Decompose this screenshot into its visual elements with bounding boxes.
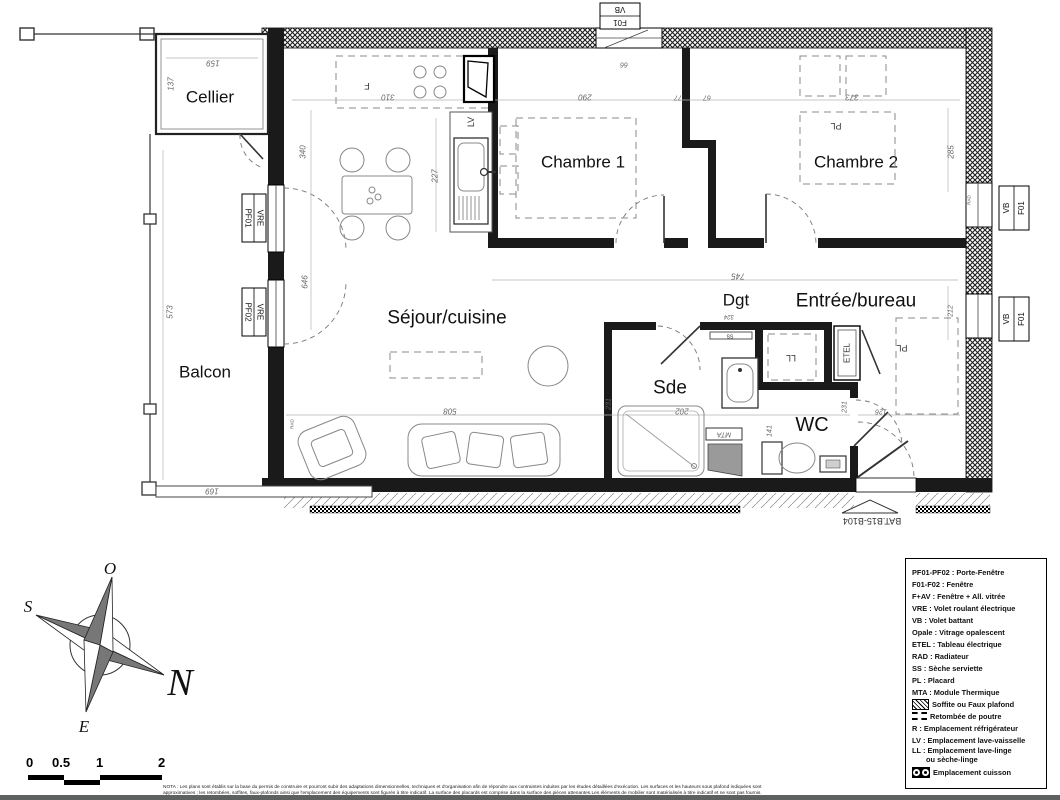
scale-label-0: 0	[26, 755, 33, 770]
closet2-dashed-right	[846, 56, 886, 96]
dim-212: 212	[948, 305, 955, 318]
closet-chambre2-label: PL	[830, 121, 841, 131]
compass-east-label: E	[78, 717, 90, 736]
room-label-sejour: Séjour/cuisine	[387, 308, 506, 329]
scale-label-05: 0.5	[52, 755, 70, 770]
dim-77: 77	[673, 94, 682, 101]
scale-segment	[28, 775, 64, 780]
legend-item: VRE : Volet roulant électrique	[912, 602, 1043, 614]
exterior-paving-right	[916, 506, 990, 513]
dim-159: 159	[206, 59, 220, 68]
dim-310: 310	[381, 93, 395, 102]
building-ref-label: BAT.B15-B104	[843, 516, 901, 526]
dim-646: 646	[301, 275, 310, 289]
entree-closet-dashed	[896, 318, 958, 414]
top-window-shutter-label: VB	[615, 5, 626, 14]
legend-item: RAD : Radiateur	[912, 650, 1043, 662]
dim-231-sde: 231	[606, 398, 613, 411]
compass-rose: O S E N	[12, 560, 202, 745]
wall-top-right-segment	[662, 28, 990, 48]
sink-unit	[450, 112, 496, 232]
compass-north-label: N	[166, 662, 195, 704]
beam-dashed-sejour	[390, 352, 482, 378]
chambre2-door-gap	[764, 238, 818, 248]
radiator-right-label: RAD	[967, 195, 972, 205]
armchair	[294, 413, 369, 484]
dim-373: 373	[845, 93, 859, 102]
legend-item: R : Emplacement réfrigérateur	[912, 722, 1043, 734]
washbasin	[722, 358, 758, 408]
scale-label-2: 2	[158, 755, 165, 770]
legend-box: PF01-PF02 : Porte-Fenêtre F01-F02 : Fenê…	[905, 558, 1047, 789]
cooktop-icon	[912, 767, 930, 778]
room-label-wc: WC	[795, 414, 828, 436]
dim-285: 285	[947, 145, 956, 160]
dim-324: 324	[723, 313, 734, 319]
side-table	[528, 346, 568, 386]
dim-169: 169	[205, 487, 219, 496]
wall-right-middle	[966, 227, 992, 294]
kitchen-window-leaf	[464, 56, 494, 102]
openings: VB F01 VB F01 VB F01 PF01	[242, 3, 1029, 526]
dim-126: 126	[875, 408, 887, 415]
beam-icon	[912, 712, 927, 720]
laundry-closet: LL	[768, 334, 816, 380]
faucet-icon	[481, 169, 488, 176]
cellier: Cellier 159 137	[20, 28, 268, 168]
dim-290: 290	[578, 93, 593, 102]
balcony-slab-edge	[156, 486, 372, 497]
chambre1-contents	[500, 118, 664, 248]
left-door1-code-label: PF01	[244, 208, 253, 228]
dining-set	[340, 148, 412, 240]
right-window2-code-label: F01	[1017, 312, 1026, 326]
sofa	[408, 424, 560, 476]
window-f01-top: VB F01	[596, 3, 662, 48]
kitchen-window-label: F	[364, 81, 370, 91]
left-door2-shutter-label: VRE	[256, 304, 265, 320]
wall-left-lower	[268, 347, 284, 492]
room-label-cellier: Cellier	[186, 88, 235, 107]
legend-item: Emplacement cuisson	[912, 766, 1043, 778]
dim-573: 573	[166, 305, 175, 319]
dim-227: 227	[431, 169, 440, 184]
legend-item: Retombée de poutre	[912, 710, 1043, 722]
mta-unit	[708, 444, 742, 476]
cooktop-icon	[414, 66, 446, 98]
towel-dryer-label: SS	[726, 333, 733, 339]
toilet	[762, 442, 815, 474]
exterior-hatch-right	[916, 493, 990, 508]
compass-west-label: O	[104, 560, 116, 578]
room-label-sde: Sde	[653, 378, 687, 399]
left-door1-shutter-label: VRE	[256, 210, 265, 226]
legend-item: F01-F02 : Fenêtre	[912, 578, 1043, 590]
wall-right-upper	[966, 28, 992, 183]
scale-label-1: 1	[96, 755, 103, 770]
wall-bottom-right-segment	[916, 478, 992, 492]
room-label-entree: Entrée/bureau	[796, 291, 916, 312]
room-label-chambre2: Chambre 2	[814, 153, 898, 172]
right-window1-shutter-label: VB	[1002, 203, 1011, 214]
legend-item: ETEL : Tableau électrique	[912, 638, 1043, 650]
interior-walls	[488, 48, 966, 478]
legend-item: VB : Volet battant	[912, 614, 1043, 626]
soffite-icon	[912, 699, 929, 710]
door-window-pf01-left: PF01 VRE	[242, 185, 346, 252]
dim-137: 137	[167, 77, 176, 91]
closet2-dashed-left	[800, 56, 840, 96]
electrical-panel: ETEL	[834, 326, 880, 380]
wc-door-gap	[850, 398, 858, 446]
door-window-pf02-left: PF02 VRE	[242, 280, 346, 347]
wall-left-upper	[268, 28, 284, 185]
chambre1-door-gap	[614, 238, 664, 248]
dim-508: 508	[443, 407, 457, 416]
wall-top-left-segment	[262, 28, 596, 48]
floor-plan-page: VB F01 VB F01 VB F01 PF01	[0, 0, 1060, 800]
room-label-dgt: Dgt	[723, 291, 750, 310]
dim-745: 745	[731, 272, 745, 281]
legend-item: MTA : Module Thermique	[912, 686, 1043, 698]
room-label-balcon: Balcon	[179, 363, 231, 382]
legend-item: Soffite ou Faux plafond	[912, 698, 1043, 710]
dim-141: 141	[767, 425, 774, 437]
legend-item: LV : Emplacement lave-vaisselle	[912, 734, 1043, 746]
thermal-module-label: MTA	[717, 431, 732, 438]
right-window2-shutter-label: VB	[1002, 314, 1011, 325]
electrical-panel-label: ETEL	[843, 342, 852, 363]
etel-door-leaf	[862, 330, 880, 374]
washer-label: LL	[786, 353, 796, 363]
cellier-door-leaf	[240, 134, 263, 159]
legend-item: LL : Emplacement lave-lingeou sèche-ling…	[912, 746, 1043, 766]
dim-340: 340	[299, 145, 308, 159]
legend-item: PF01-PF02 : Porte-Fenêtre	[912, 566, 1043, 578]
room-label-chambre1: Chambre 1	[541, 153, 625, 172]
window-f01-right-upper: VB F01	[966, 183, 1029, 230]
wall-left-middle	[268, 252, 284, 280]
scale-segment	[64, 780, 100, 785]
outer-walls	[262, 28, 992, 513]
bed2-dashed	[800, 112, 895, 184]
floor-plan-drawing: VB F01 VB F01 VB F01 PF01	[0, 0, 1060, 556]
window-f01-right-lower: VB F01	[966, 294, 1029, 341]
scale-segment	[100, 775, 162, 780]
left-door2-code-label: PF02	[244, 302, 253, 322]
scale-bar: 0 0.5 1 2	[22, 755, 182, 791]
dim-66: 66	[620, 61, 628, 68]
wall-right-lower	[966, 338, 992, 492]
thermal-module: MTA	[706, 428, 742, 476]
legend-item: PL : Placard	[912, 674, 1043, 686]
shower	[618, 406, 704, 476]
dishwasher-label: LV	[466, 117, 476, 127]
right-window1-code-label: F01	[1017, 201, 1026, 215]
closet-entree-label: PL	[896, 343, 907, 353]
legend-item: Opale : Vitrage opalescent	[912, 626, 1043, 638]
dim-67: 67	[702, 94, 711, 101]
legend-item: SS : Sèche serviette	[912, 662, 1043, 674]
top-window-code-label: F01	[613, 18, 627, 27]
compass-south-label: S	[24, 597, 33, 616]
exterior-paving-left	[310, 506, 740, 513]
bottom-divider-bar	[0, 795, 1060, 800]
legend-item: F+AV : Fenêtre + All. vitrée	[912, 590, 1043, 602]
kitchen: F LV	[336, 56, 496, 240]
dim-231-wc: 231	[842, 401, 849, 414]
radiator-left-label: RAD	[290, 419, 295, 429]
